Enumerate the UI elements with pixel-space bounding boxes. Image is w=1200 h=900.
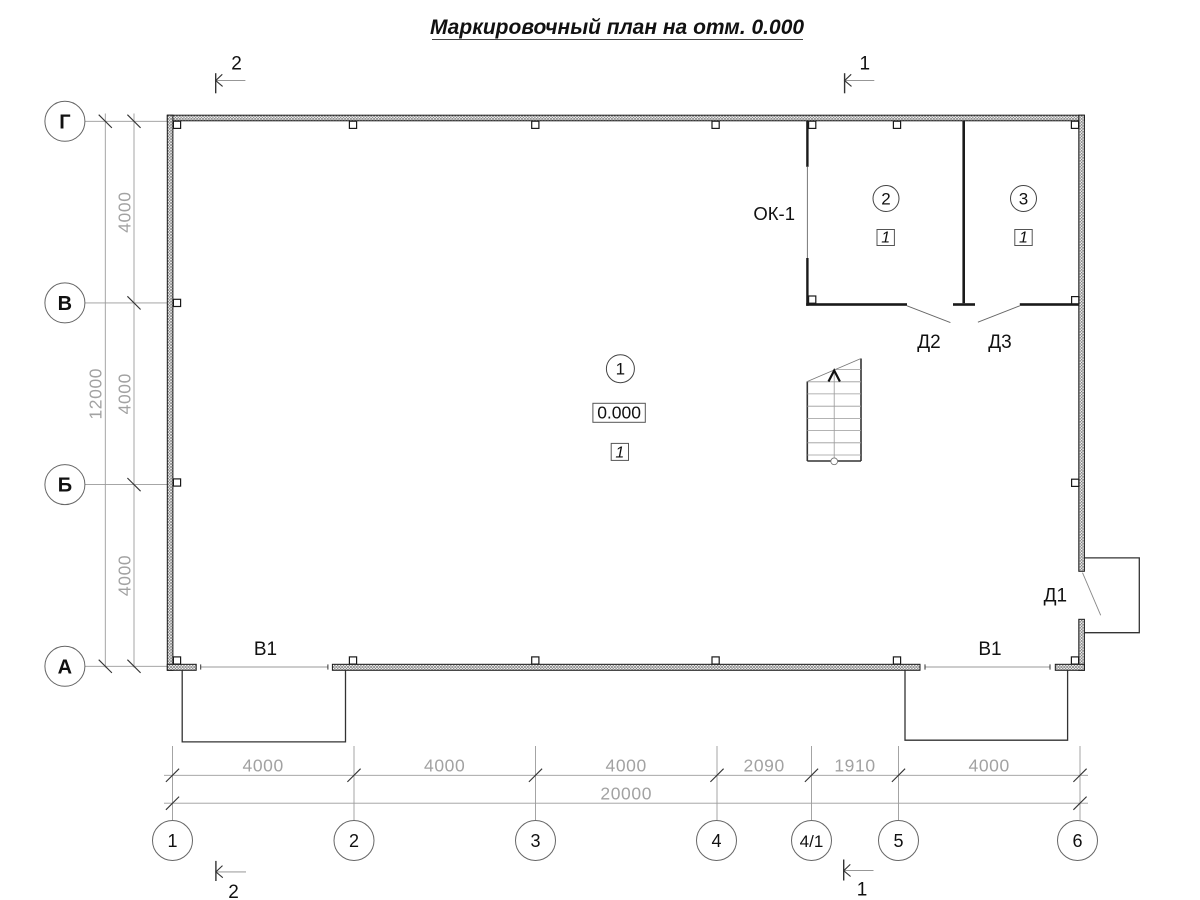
- svg-text:1: 1: [857, 880, 868, 900]
- svg-text:Г: Г: [59, 111, 70, 133]
- svg-text:1: 1: [615, 444, 624, 461]
- svg-text:ОК-1: ОК-1: [753, 203, 795, 224]
- svg-text:Д3: Д3: [988, 332, 1011, 353]
- svg-text:4000: 4000: [424, 756, 465, 776]
- svg-text:5: 5: [893, 831, 903, 851]
- svg-text:2: 2: [231, 54, 242, 75]
- svg-text:Д2: Д2: [917, 332, 940, 353]
- svg-text:2090: 2090: [744, 756, 785, 776]
- svg-text:3: 3: [530, 831, 540, 851]
- svg-text:1: 1: [1019, 230, 1028, 247]
- svg-text:Маркировочный план на отм. 0.0: Маркировочный план на отм. 0.000: [430, 16, 804, 39]
- svg-text:4000: 4000: [115, 191, 135, 232]
- svg-text:А: А: [58, 656, 72, 678]
- svg-text:1: 1: [881, 230, 890, 247]
- svg-text:Б: Б: [58, 475, 72, 497]
- svg-text:В1: В1: [978, 639, 1001, 660]
- svg-text:4000: 4000: [969, 756, 1010, 776]
- svg-text:0.000: 0.000: [597, 403, 641, 423]
- svg-text:В1: В1: [254, 639, 277, 660]
- svg-text:2: 2: [349, 831, 359, 851]
- svg-text:4/1: 4/1: [800, 832, 824, 851]
- svg-text:12000: 12000: [86, 368, 106, 420]
- svg-text:4: 4: [711, 831, 721, 851]
- svg-text:4000: 4000: [115, 373, 135, 414]
- svg-text:2: 2: [881, 190, 890, 209]
- svg-text:4000: 4000: [243, 756, 284, 776]
- svg-text:2: 2: [228, 882, 239, 900]
- svg-text:1910: 1910: [834, 756, 875, 776]
- svg-text:Д1: Д1: [1044, 586, 1067, 607]
- svg-text:1: 1: [167, 831, 177, 851]
- svg-text:В: В: [58, 293, 72, 315]
- svg-text:1: 1: [616, 360, 625, 379]
- svg-text:3: 3: [1019, 190, 1028, 209]
- svg-text:4000: 4000: [115, 555, 135, 596]
- svg-text:1: 1: [860, 54, 871, 75]
- svg-text:4000: 4000: [606, 756, 647, 776]
- svg-text:6: 6: [1072, 831, 1082, 851]
- svg-text:20000: 20000: [600, 783, 652, 803]
